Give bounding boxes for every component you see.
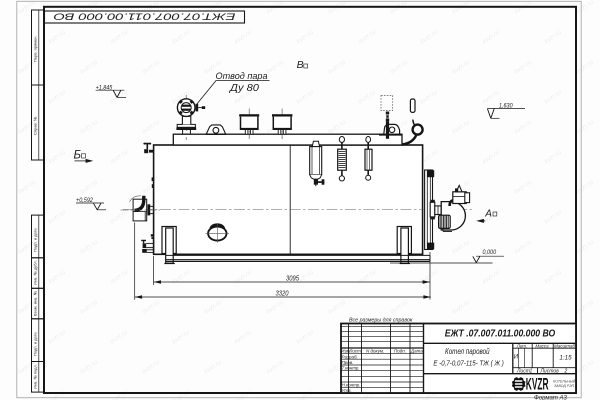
svg-text:Инв. № дубл.: Инв. № дубл. — [33, 260, 38, 285]
svg-text:Е -0,7-0,07-115- ТЖ ( Ж ): Е -0,7-0,07-115- ТЖ ( Ж ) — [433, 359, 504, 368]
svg-text:Все размеры для справок: Все размеры для справок — [349, 317, 413, 323]
svg-text:Листов: Листов — [540, 368, 560, 374]
svg-text:Подп. и дата: Подп. и дата — [33, 332, 38, 356]
svg-text:1: 1 — [530, 368, 533, 374]
svg-text:0,000: 0,000 — [483, 249, 497, 256]
svg-text:Котел паровой: Котел паровой — [445, 347, 490, 356]
svg-text:1:15: 1:15 — [559, 354, 572, 361]
svg-text:Масса: Масса — [535, 343, 549, 348]
svg-text:Масштаб: Масштаб — [554, 343, 575, 348]
svg-text:Лит.: Лит. — [516, 343, 528, 348]
svg-text:Лист: Лист — [516, 368, 530, 374]
svg-text:Справ. №: Справ. № — [33, 117, 38, 135]
svg-text:Взам. инв. №: Взам. инв. № — [33, 291, 38, 316]
svg-text:N докум.: N докум. — [366, 348, 384, 353]
svg-text:Н.контр.: Н.контр. — [342, 383, 361, 388]
svg-text:Ду 80: Ду 80 — [229, 83, 260, 94]
svg-text:Подп. и дата: Подп. и дата — [33, 228, 38, 252]
svg-text:Дата: Дата — [410, 348, 423, 353]
svg-text:Пров.: Пров. — [342, 360, 354, 365]
svg-text:3320: 3320 — [276, 290, 289, 297]
svg-text:Б: Б — [74, 149, 82, 161]
svg-text:3095: 3095 — [286, 275, 299, 282]
svg-text:КОТЕЛЬНЫЙ: КОТЕЛЬНЫЙ — [553, 379, 576, 383]
svg-text:И: И — [514, 355, 519, 361]
svg-text:Лист: Лист — [348, 348, 361, 353]
svg-text:Перв. примен.: Перв. примен. — [33, 35, 38, 62]
svg-text:Подп.: Подп. — [394, 348, 406, 353]
svg-text:А: А — [484, 209, 492, 220]
svg-text:Т.контр.: Т.контр. — [342, 366, 360, 371]
svg-text:Инв. № подл.: Инв. № подл. — [33, 364, 38, 389]
svg-text:Разраб.: Разраб. — [342, 354, 358, 359]
svg-text:ЕЖТ.07.007.011.00.000 ВО: ЕЖТ.07.007.011.00.000 ВО — [54, 12, 236, 22]
svg-text:KVZR: KVZR — [526, 376, 549, 394]
svg-text:ЗАВОД РЭП: ЗАВОД РЭП — [554, 384, 575, 388]
svg-text:2: 2 — [564, 368, 568, 374]
svg-text:Утв.: Утв. — [342, 388, 352, 393]
svg-text:Формат А3: Формат А3 — [534, 395, 567, 400]
svg-text:В: В — [297, 59, 304, 71]
svg-text:Отвод пара: Отвод пара — [216, 71, 268, 82]
svg-text:ЕЖТ .07.007.011.00.000 ВО: ЕЖТ .07.007.011.00.000 ВО — [445, 329, 556, 340]
